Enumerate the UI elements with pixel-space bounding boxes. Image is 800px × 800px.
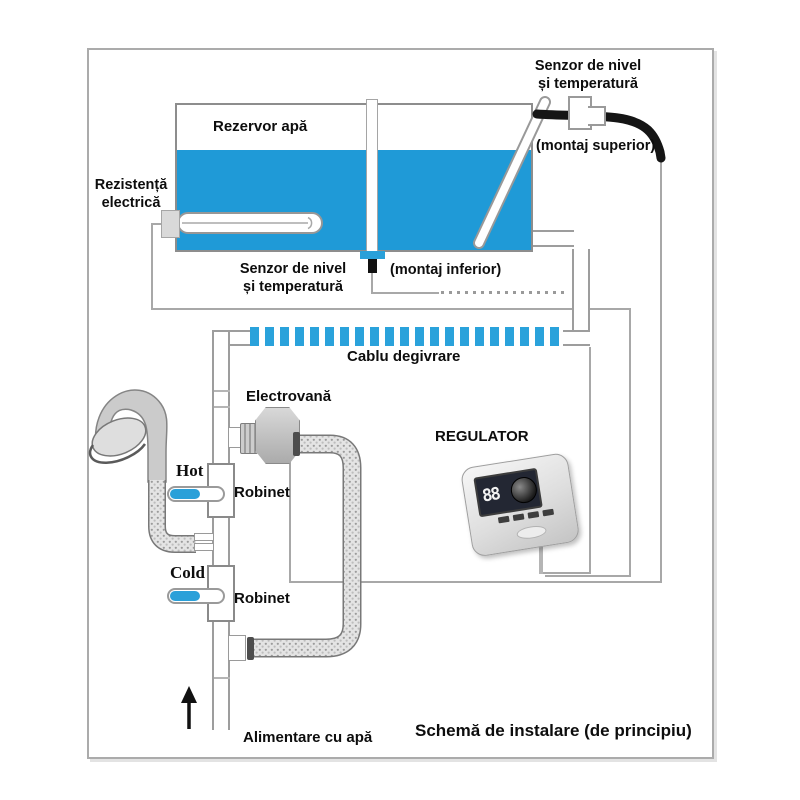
supply-label: Alimentare cu apă <box>243 729 372 746</box>
top-mount-label: (montaj superior) <box>536 138 655 154</box>
hot-label: Hot <box>176 461 203 481</box>
hot-robinet-label: Robinet <box>234 484 290 501</box>
top-sensor-tube <box>479 102 545 243</box>
cold-label: Cold <box>170 563 205 583</box>
hot-tap <box>167 486 225 502</box>
shower-stub-1 <box>194 533 214 541</box>
regulator-label: REGULATOR <box>435 428 529 445</box>
diagram-shapes <box>0 0 800 800</box>
top-sensor-label-line2: și temperatură <box>525 75 651 93</box>
valve-hose <box>252 444 352 648</box>
heater-label-line2: electrică <box>90 194 172 212</box>
cold-tap <box>167 588 225 604</box>
bottom-mount-label: (montaj inferior) <box>390 262 501 278</box>
shower-stub-2 <box>194 543 214 551</box>
bottom-sensor-label: Senzor de nivel și temperatură <box>232 260 354 296</box>
regulator-dial <box>509 475 539 505</box>
shower-head <box>87 390 167 482</box>
bottom-sensor-label-line2: și temperatură <box>232 278 354 296</box>
diagram-title: Schemă de instalare (de principiu) <box>415 721 692 741</box>
heater-label-line1: Rezistență <box>90 176 172 194</box>
valve-hose-cap-bottom <box>247 637 254 660</box>
bottom-sensor-label-line1: Senzor de nivel <box>232 260 354 278</box>
regulator-digits: 88 <box>481 484 500 506</box>
hot-tap-handle <box>170 489 200 499</box>
defrost-cable-label: Cablu degivrare <box>347 348 460 365</box>
cold-robinet-label: Robinet <box>234 590 290 607</box>
bottom-sensor-tube <box>366 99 378 252</box>
top-sensor-fitting-step <box>588 106 606 126</box>
hose-pipe-stub <box>228 635 246 661</box>
heater-connector <box>161 210 180 238</box>
regulator-device: 88 <box>460 452 578 555</box>
bottom-sensor-probe <box>368 259 377 273</box>
bottom-sensor-cap <box>360 251 385 259</box>
installation-diagram: 88 Rezervor apă Senzor de nivel și tempe… <box>0 0 800 800</box>
supply-arrow-icon <box>181 686 197 729</box>
top-sensor-label: Senzor de nivel și temperatură <box>525 57 651 93</box>
tank-label: Rezervor apă <box>213 118 307 135</box>
valve-hose-cap-top <box>293 432 300 456</box>
cold-tap-handle <box>170 591 200 601</box>
valve-label: Electrovană <box>246 388 331 405</box>
heating-element <box>178 213 322 233</box>
heater-label: Rezistență electrică <box>90 176 172 212</box>
top-sensor-label-line1: Senzor de nivel <box>525 57 651 75</box>
